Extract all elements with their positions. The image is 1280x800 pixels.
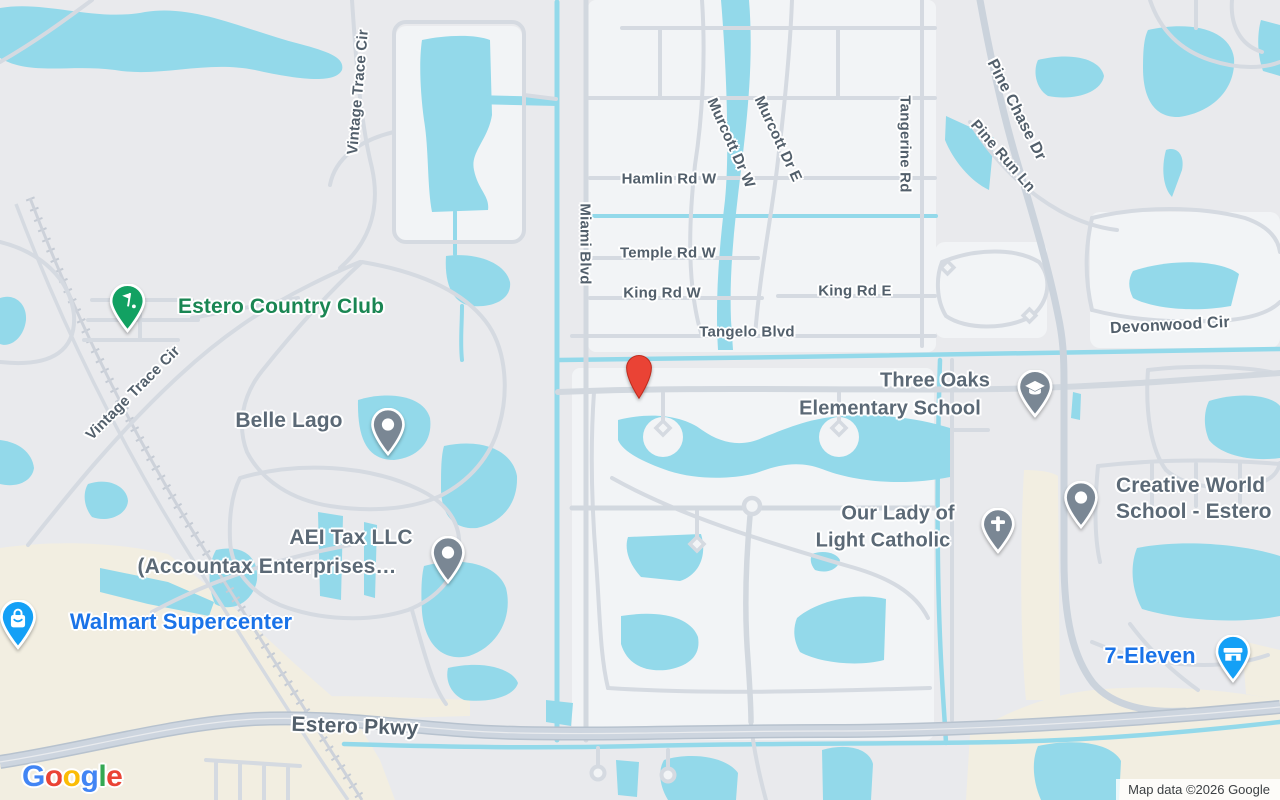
poi-label-three-oaks-line2[interactable]: Elementary School [799,398,981,421]
school-pin-icon[interactable] [1014,370,1056,423]
golf-pin-icon[interactable] [106,284,149,338]
school-pin-icon-creative-world[interactable] [1061,481,1101,534]
church-pin-icon[interactable] [978,508,1018,559]
business-pin-icon[interactable] [428,536,468,589]
road-label-king-rd-e: King Rd E [818,283,891,300]
poi-label-our-lady-line1[interactable]: Our Lady of [841,503,954,526]
poi-label-aei-tax-llc-line2[interactable]: (Accountax Enterprises… [137,555,396,579]
google-logo[interactable]: Google [22,760,122,794]
logo-letter: o [45,760,63,793]
road-label-miami-blvd: Miami Blvd [577,203,594,284]
map-viewport: Vintage Trace Cir Vintage Trace Cir Miam… [0,0,1280,800]
convenience-store-pin-icon[interactable] [1212,635,1254,688]
neighborhood-pin-icon[interactable] [368,408,408,461]
road-label-temple-rd-w: Temple Rd W [620,245,716,262]
poi-label-aei-tax-llc-line1[interactable]: AEI Tax LLC [289,526,412,550]
red-map-marker[interactable] [624,354,654,405]
poi-label-three-oaks-line1[interactable]: Three Oaks [880,370,990,393]
poi-label-belle-lago[interactable]: Belle Lago [235,409,342,433]
logo-letter: e [106,760,122,793]
poi-label-our-lady-line2[interactable]: Light Catholic [816,530,951,553]
road-label-king-rd-w: King Rd W [623,285,701,302]
poi-label-creative-world-line2[interactable]: School - Estero [1116,500,1272,524]
map-attribution: Map data ©2026 Google [1116,779,1280,800]
logo-letter: g [81,760,99,793]
poi-label-creative-world-line1[interactable]: Creative World [1116,474,1265,498]
shopping-bag-pin-icon[interactable] [0,600,39,655]
road-label-estero-pkwy: Estero Pkwy [291,713,419,741]
logo-letter: G [22,760,45,793]
poi-label-seven-eleven[interactable]: 7-Eleven [1104,643,1195,669]
logo-letter: l [98,760,106,793]
logo-letter: o [63,760,81,793]
road-label-tangelo-blvd: Tangelo Blvd [699,324,794,341]
road-label-tangerine-rd: Tangerine Rd [897,95,914,192]
poi-label-estero-country-club[interactable]: Estero Country Club [178,295,384,319]
road-label-hamlin-rd-w: Hamlin Rd W [622,171,717,188]
poi-label-walmart-supercenter[interactable]: Walmart Supercenter [70,609,292,635]
